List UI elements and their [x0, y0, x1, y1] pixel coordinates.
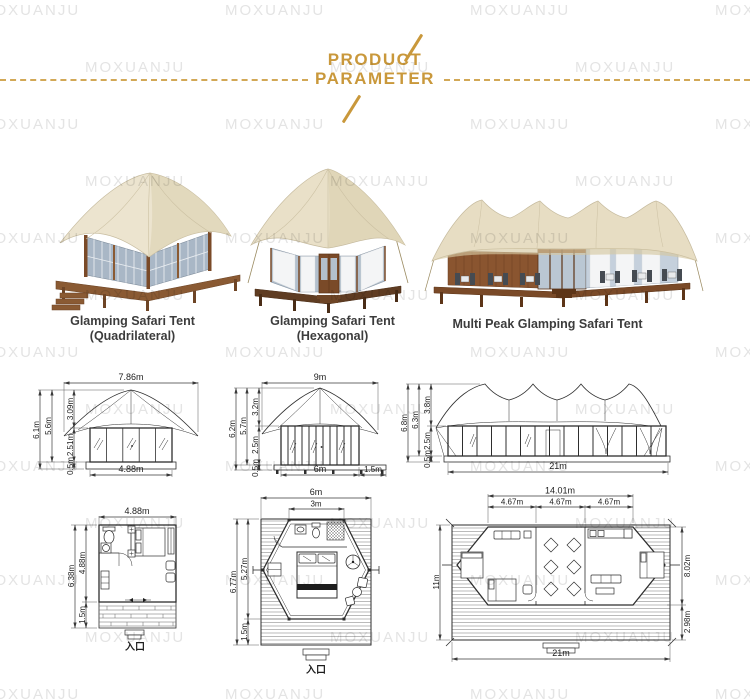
dim-deck-depth: 1.5m: [78, 606, 87, 624]
product-parameter-page: PRODUCT PARAMETER: [0, 0, 750, 700]
dim-total-depth: 6.77m: [229, 571, 238, 594]
watermark-text: MOXUANJU: [0, 116, 80, 133]
floor-plan-hexagonal: 入口 6m 3m 6.77m 5.27m 1.5m: [225, 485, 390, 680]
watermark-text: MOXUANJU: [470, 344, 570, 361]
dim-room-depth: 5.27m: [240, 558, 249, 581]
watermark-text: MOXUANJU: [0, 344, 80, 361]
entry-steps: [303, 649, 329, 660]
floor-plan-quadrilateral: 入口 4.88m 6.38m 4.88m 1.5m: [55, 495, 205, 665]
dim-total-height: 6.2m: [228, 420, 237, 438]
watermark-text: MOXUANJU: [225, 116, 325, 133]
product-label-multi-peak: Multi Peak Glamping Safari Tent: [420, 317, 675, 332]
dim-base-height: 0.5m: [66, 457, 75, 475]
dim-top-width: 6m: [310, 487, 323, 497]
tent-render-multi-peak: [420, 185, 705, 313]
dim-total-height: 6.8m: [400, 414, 409, 432]
dim-left-depth: 11m: [432, 574, 441, 589]
elevation-hexagonal: 9m 6.2m 5.7m 3.2m 2.5m 0.5m 6m 1.5m: [226, 370, 392, 482]
product-name: Glamping Safari Tent: [240, 314, 425, 329]
dim-bottom-width: 6m: [314, 464, 327, 474]
entrance-label: 入口: [125, 641, 145, 653]
dim-deck-extension: 1.5m: [364, 465, 382, 474]
dim-total-depth: 6.38m: [67, 565, 76, 588]
page-title: PRODUCT PARAMETER: [0, 50, 750, 88]
watermark-text: MOXUANJU: [225, 344, 325, 361]
dim-deck-depth: 1.5m: [240, 623, 249, 641]
dim-room-depth: 8.02m: [683, 555, 692, 578]
watermark-text: MOXUANJU: [225, 686, 325, 700]
entry-steps: [317, 295, 341, 303]
watermark-text: MOXUANJU: [715, 116, 750, 133]
dim-seg2: 4.67m: [549, 498, 572, 507]
watermark-text: MOXUANJU: [225, 2, 325, 19]
dim-bottom-width: 4.88m: [118, 464, 143, 474]
page-title-line1: PRODUCT: [0, 50, 750, 69]
dim-top-width: 9m: [314, 372, 327, 382]
dim-room-depth: 4.88m: [78, 552, 87, 575]
dim-bottom-width: 21m: [549, 461, 567, 471]
dim-seg3: 4.67m: [598, 498, 621, 507]
product-subname: (Quadrilateral): [40, 329, 225, 344]
stairs: [52, 293, 88, 310]
product-name: Multi Peak Glamping Safari Tent: [420, 317, 675, 332]
dim-wall-height: 2.5m: [423, 432, 432, 450]
dim-roof-top-width: 3m: [310, 500, 321, 509]
dim-top-width: 4.88m: [124, 506, 149, 516]
dim-roof-height: 3.09m: [66, 398, 75, 421]
entrance-label: 入口: [306, 664, 326, 676]
dim-roof-wall-height: 6.3m: [411, 411, 420, 429]
watermark-text: MOXUANJU: [715, 230, 750, 247]
dim-bottom-width: 21m: [552, 648, 570, 658]
dim-deck-depth: 2.98m: [683, 611, 692, 634]
chair: [166, 573, 175, 582]
watermark-text: MOXUANJU: [470, 116, 570, 133]
watermark-text: MOXUANJU: [470, 2, 570, 19]
product-subname: (Hexagonal): [240, 329, 425, 344]
product-label-hexagonal: Glamping Safari Tent (Hexagonal): [240, 314, 425, 344]
bed: [297, 552, 337, 598]
deck-hatch: [99, 606, 176, 626]
table: [353, 588, 362, 597]
elevation-multi-peak: 6.8m 6.3m 3.8m 2.5m 0.5m 21m: [400, 370, 692, 482]
dim-top-width: 7.86m: [118, 372, 143, 382]
watermark-text: MOXUANJU: [715, 572, 750, 589]
tent-render-quadrilateral: [48, 163, 243, 313]
chair: [357, 577, 368, 588]
entry-steps: [125, 630, 144, 639]
watermark-text: MOXUANJU: [715, 686, 750, 700]
product-name: Glamping Safari Tent: [40, 314, 225, 329]
watermark-text: MOXUANJU: [0, 2, 80, 19]
dim-roof-height: 3.8m: [423, 396, 432, 414]
page-title-line2: PARAMETER: [0, 69, 750, 88]
watermark-text: MOXUANJU: [715, 2, 750, 19]
header-slash-bottom-icon: [342, 95, 362, 124]
dim-wall-height: 2.51m: [66, 434, 75, 457]
product-label-quadrilateral: Glamping Safari Tent (Quadrilateral): [40, 314, 225, 344]
dim-roof-height: 3.2m: [251, 398, 260, 416]
dim-base-height: 0.5m: [423, 450, 432, 468]
dim-wall-height: 2.5m: [251, 436, 260, 454]
watermark-text: MOXUANJU: [715, 344, 750, 361]
dim-roof-wall-height: 5.7m: [239, 417, 248, 435]
watermark-text: MOXUANJU: [0, 686, 80, 700]
tent-render-hexagonal: [243, 163, 413, 313]
cabinet: [101, 571, 109, 589]
floor-plan-multi-peak: 14.01m 4.67m 4.67m 4.67m 11m 8.02m 2.98m…: [428, 485, 703, 690]
chair: [345, 596, 355, 606]
dim-seg1: 4.67m: [501, 498, 524, 507]
dim-top-width: 14.01m: [545, 486, 575, 496]
chair: [166, 561, 175, 570]
dim-total-height: 6.1m: [32, 421, 41, 439]
elevation-quadrilateral: 7.86m 6.1m 5.6m 3.09m 2.51m 0.5m 4.88m: [28, 370, 203, 482]
dim-roof-wall-height: 5.6m: [44, 417, 53, 435]
watermark-text: MOXUANJU: [715, 458, 750, 475]
dim-base-height: 0.5m: [251, 459, 260, 477]
